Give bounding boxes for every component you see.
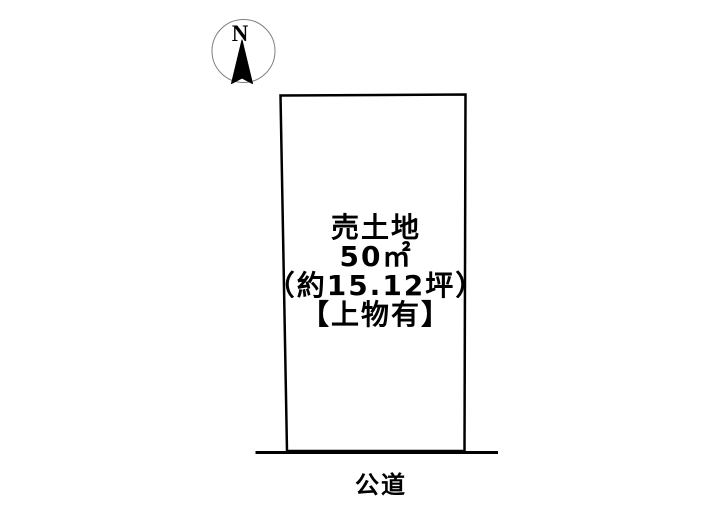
parcel-info: 売土地 50㎡ （約15.12坪） 【上物有】: [267, 213, 486, 329]
compass-needle-icon: [232, 40, 253, 84]
listing-type-label: 売土地: [267, 213, 486, 242]
area-sqm-label: 50㎡: [267, 242, 486, 271]
compass-north-label: N: [232, 22, 249, 45]
building-note-label: 【上物有】: [267, 300, 486, 329]
land-plot-diagram: N 売土地 50㎡ （約15.12坪） 【上物有】 公道: [0, 0, 705, 525]
road-label: 公道: [355, 473, 407, 497]
area-tsubo-label: （約15.12坪）: [267, 271, 486, 300]
